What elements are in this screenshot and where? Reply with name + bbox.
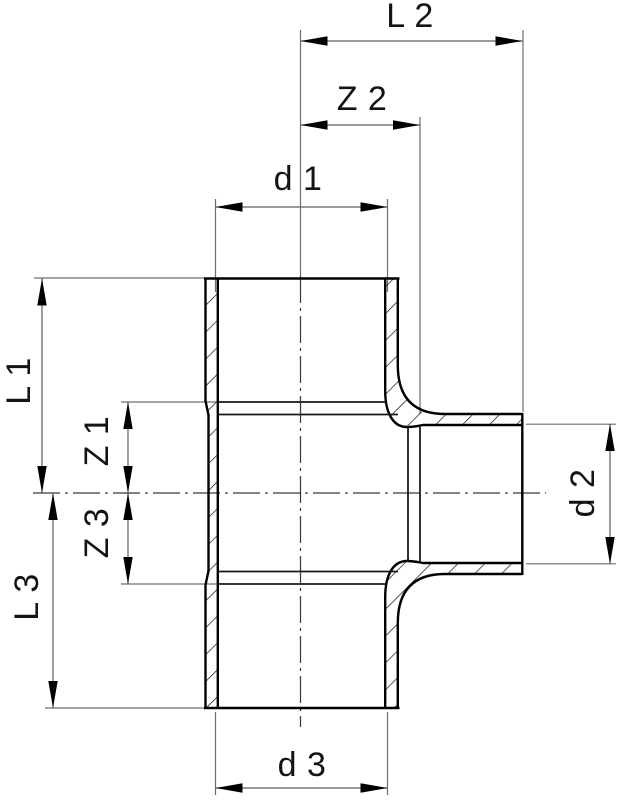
dimension-label-l3: L 3 [8,573,46,621]
dimension-label-d2: d 2 [564,469,602,518]
technical-drawing-page: L 2 Z 2 d 1 L 1 Z 1 Z 3 L 3 d 2 d 3 [0,0,622,800]
center-lines [33,276,546,727]
dimension-label-d1: d 1 [274,160,323,198]
dimension-label-l1: L 1 [0,357,38,405]
dimension-label-z1: Z 1 [78,416,116,467]
dimension-label-l2: L 2 [386,0,434,35]
dimension-label-z3: Z 3 [78,508,116,559]
upper-right-wall-hatch [385,278,522,427]
right-outer-wall-upper-fillet [398,278,523,414]
dimension-label-z2: Z 2 [337,80,388,118]
extension-lines [34,30,616,795]
lower-right-wall-hatch [385,561,522,708]
dimension-label-d3: d 3 [278,746,327,784]
right-outer-wall-lower-fillet [398,574,523,708]
tee-fitting-dimension-drawing: L 2 Z 2 d 1 L 1 Z 1 Z 3 L 3 d 2 d 3 [0,0,622,800]
